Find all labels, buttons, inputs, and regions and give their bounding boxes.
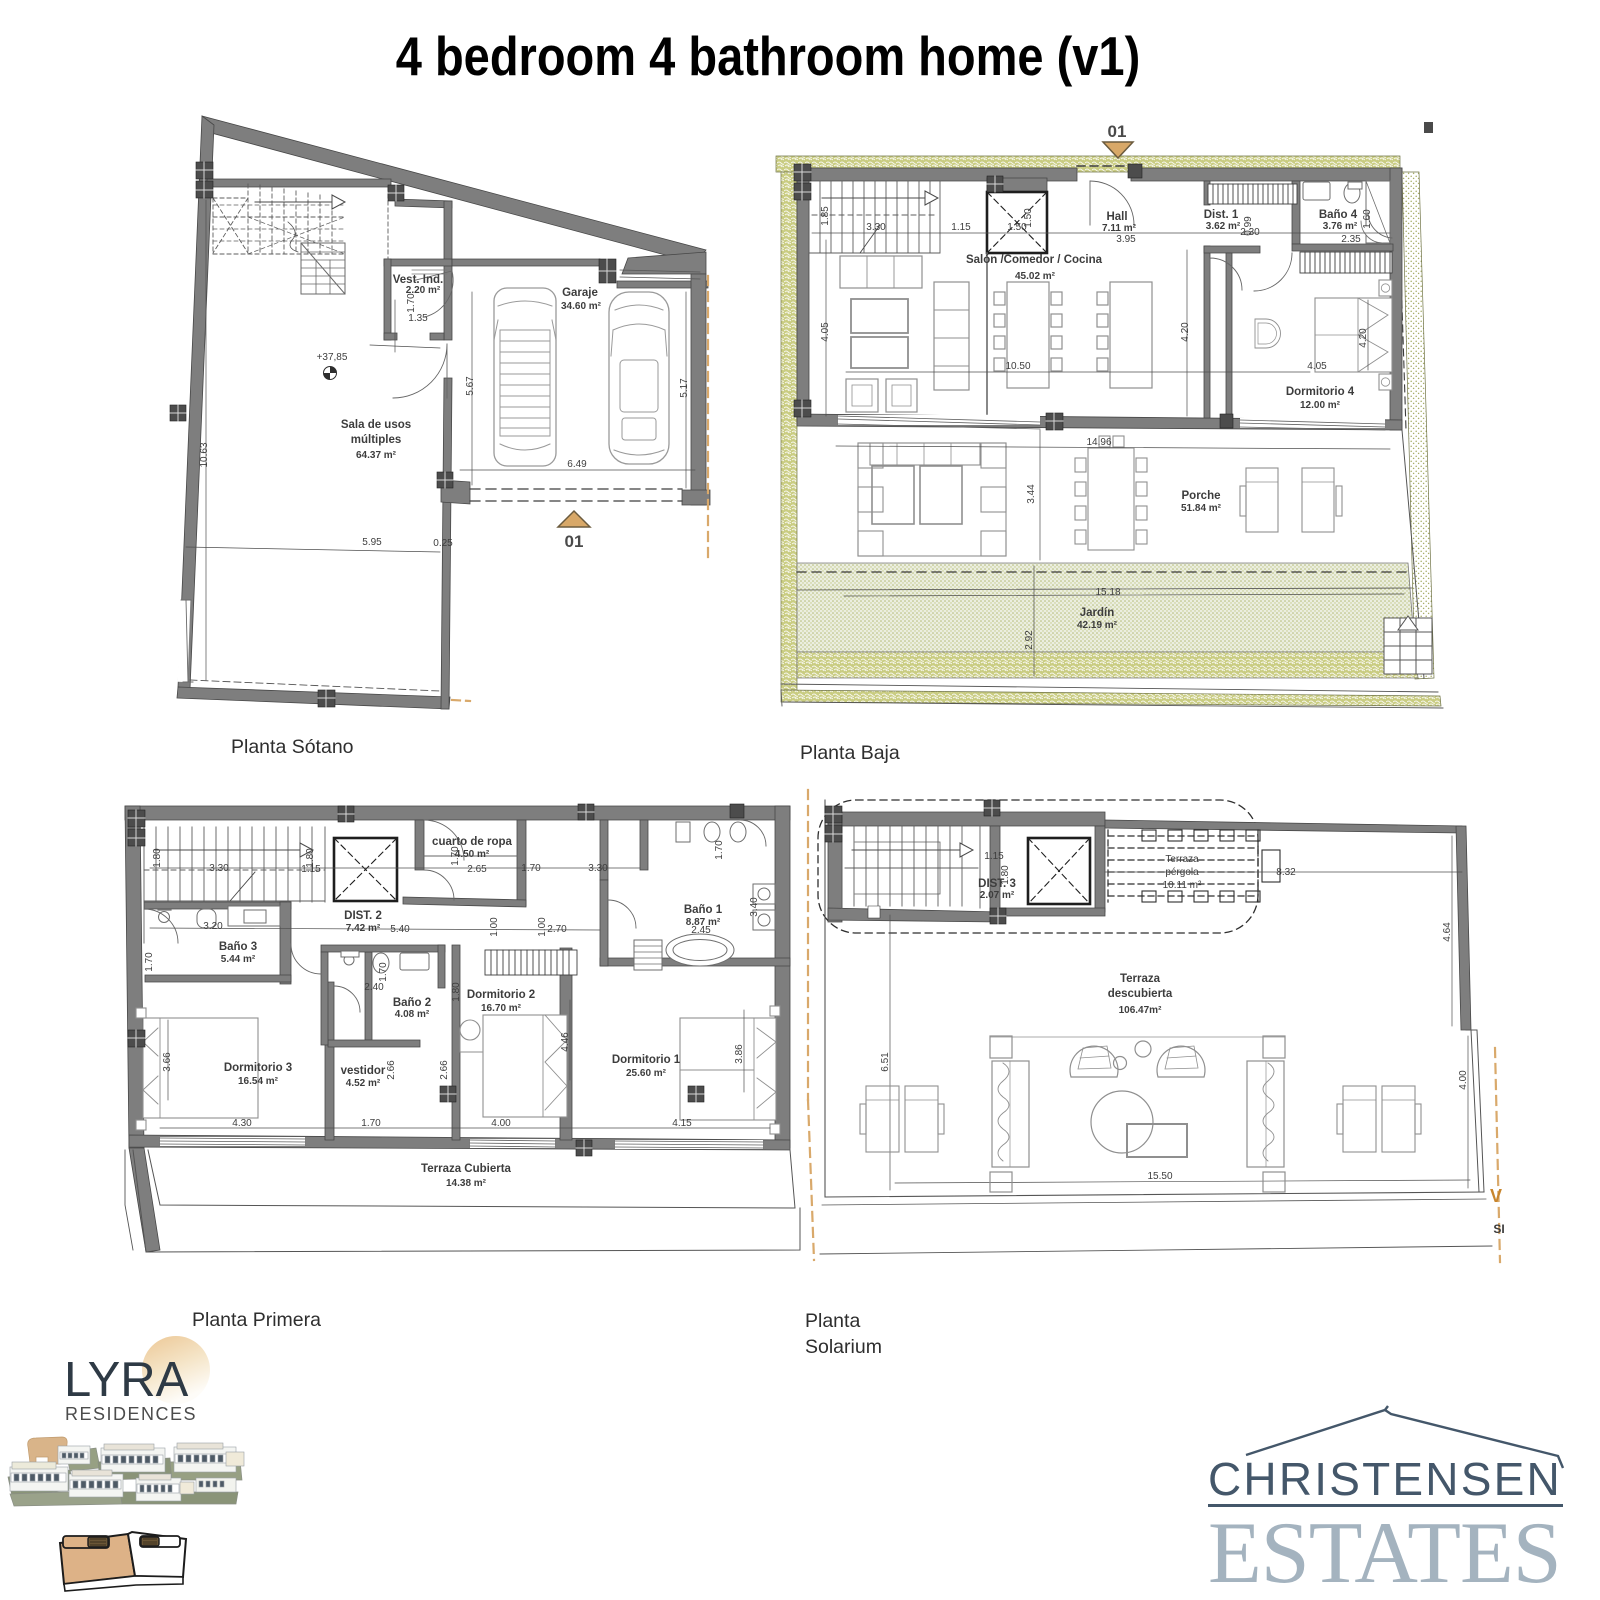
svg-text:Sala de usos: Sala de usos bbox=[341, 419, 411, 431]
svg-text:3.86: 3.86 bbox=[734, 1044, 745, 1064]
svg-text:Dormitorio 1: Dormitorio 1 bbox=[612, 1054, 681, 1066]
svg-text:1.70: 1.70 bbox=[714, 840, 725, 860]
svg-text:1.15: 1.15 bbox=[984, 851, 1004, 862]
svg-text:1.80: 1.80 bbox=[451, 982, 462, 1002]
svg-text:descubierta: descubierta bbox=[1108, 988, 1173, 1000]
svg-text:12.00 m²: 12.00 m² bbox=[1300, 400, 1341, 411]
svg-text:10.50: 10.50 bbox=[1005, 361, 1030, 372]
svg-text:3.44: 3.44 bbox=[1026, 484, 1037, 504]
svg-text:Dormitorio 4: Dormitorio 4 bbox=[1286, 386, 1355, 398]
svg-text:Baño 2: Baño 2 bbox=[393, 997, 431, 1009]
svg-text:5.40: 5.40 bbox=[390, 924, 410, 935]
svg-text:2.35: 2.35 bbox=[1341, 234, 1361, 245]
svg-text:1.70: 1.70 bbox=[521, 863, 541, 874]
svg-text:2.07 m²: 2.07 m² bbox=[980, 890, 1015, 901]
svg-text:4 bedroom 4 bathroom home (v1): 4 bedroom 4 bathroom home (v1) bbox=[396, 26, 1141, 87]
svg-text:1.80: 1.80 bbox=[1000, 865, 1011, 885]
svg-text:7.42 m²: 7.42 m² bbox=[346, 923, 381, 934]
svg-text:4.20: 4.20 bbox=[1358, 328, 1369, 348]
svg-text:2.45: 2.45 bbox=[691, 925, 711, 936]
svg-text:5.44 m²: 5.44 m² bbox=[221, 954, 256, 965]
svg-text:1.70: 1.70 bbox=[378, 962, 389, 982]
svg-text:4.05: 4.05 bbox=[1307, 361, 1327, 372]
svg-text:Baño 3: Baño 3 bbox=[219, 941, 257, 953]
svg-text:14.38 m²: 14.38 m² bbox=[446, 1178, 487, 1189]
svg-text:múltiples: múltiples bbox=[351, 434, 401, 446]
svg-text:14.96: 14.96 bbox=[1086, 437, 1111, 448]
svg-text:Garaje: Garaje bbox=[562, 287, 598, 299]
svg-text:3.95: 3.95 bbox=[1116, 234, 1136, 245]
svg-text:6.51: 6.51 bbox=[880, 1052, 891, 1072]
svg-text:Dist. 1: Dist. 1 bbox=[1204, 209, 1239, 221]
svg-text:Planta: Planta bbox=[805, 1310, 860, 1332]
svg-text:Planta Baja: Planta Baja bbox=[800, 742, 900, 764]
svg-text:42.19 m²: 42.19 m² bbox=[1077, 620, 1118, 631]
svg-text:2.66: 2.66 bbox=[386, 1060, 397, 1080]
svg-text:34.60 m²: 34.60 m² bbox=[561, 301, 602, 312]
svg-text:Terraza: Terraza bbox=[1120, 973, 1161, 985]
svg-text:10.63: 10.63 bbox=[199, 442, 210, 467]
svg-text:6.49: 6.49 bbox=[567, 459, 587, 470]
svg-text:1.70: 1.70 bbox=[450, 846, 461, 866]
svg-text:1.00: 1.00 bbox=[489, 917, 500, 937]
svg-text:16.54 m²: 16.54 m² bbox=[238, 1076, 279, 1087]
svg-text:51.84 m²: 51.84 m² bbox=[1181, 503, 1222, 514]
svg-text:4.15: 4.15 bbox=[672, 1118, 692, 1129]
svg-text:45.02 m²: 45.02 m² bbox=[1015, 271, 1056, 282]
svg-text:01: 01 bbox=[565, 532, 584, 551]
svg-text:0.99: 0.99 bbox=[1243, 216, 1254, 236]
svg-text:4.46: 4.46 bbox=[560, 1032, 571, 1052]
svg-text:ESTATES: ESTATES bbox=[1208, 1505, 1561, 1600]
svg-text:5.67: 5.67 bbox=[465, 376, 476, 396]
svg-text:1.70: 1.70 bbox=[144, 952, 155, 972]
svg-text:Dormitorio 3: Dormitorio 3 bbox=[224, 1062, 292, 1074]
svg-text:Baño 4: Baño 4 bbox=[1319, 209, 1358, 221]
svg-text:Terraza Cubierta: Terraza Cubierta bbox=[421, 1163, 512, 1175]
svg-text:1.15: 1.15 bbox=[951, 222, 971, 233]
svg-text:1.70: 1.70 bbox=[406, 293, 417, 313]
svg-text:Solarium: Solarium bbox=[805, 1336, 882, 1358]
svg-text:1.50: 1.50 bbox=[1023, 208, 1034, 228]
svg-text:10.11 m²: 10.11 m² bbox=[1163, 880, 1202, 891]
svg-text:8.32: 8.32 bbox=[1276, 867, 1296, 878]
svg-text:cuarto de ropa: cuarto de ropa bbox=[432, 836, 512, 848]
svg-text:2.40: 2.40 bbox=[364, 982, 384, 993]
svg-text:3.66: 3.66 bbox=[162, 1052, 173, 1072]
svg-text:2.92: 2.92 bbox=[1024, 630, 1035, 650]
svg-text:106.47m²: 106.47m² bbox=[1119, 1005, 1162, 1016]
svg-text:LYRA: LYRA bbox=[64, 1353, 189, 1407]
svg-text:2.66: 2.66 bbox=[439, 1060, 450, 1080]
svg-text:1.80: 1.80 bbox=[305, 848, 316, 868]
svg-text:Porche: Porche bbox=[1182, 490, 1221, 502]
svg-text:1.60: 1.60 bbox=[1362, 209, 1373, 229]
svg-text:16.70 m²: 16.70 m² bbox=[481, 1003, 522, 1014]
svg-text:4.64: 4.64 bbox=[1442, 922, 1453, 942]
svg-text:01: 01 bbox=[1108, 122, 1127, 141]
svg-text:3.30: 3.30 bbox=[866, 222, 886, 233]
svg-text:4.52 m²: 4.52 m² bbox=[346, 1078, 381, 1089]
svg-text:3.20: 3.20 bbox=[203, 921, 223, 932]
svg-text:4.05: 4.05 bbox=[820, 322, 831, 342]
svg-text:15.18: 15.18 bbox=[1095, 587, 1120, 598]
svg-text:Terraza: Terraza bbox=[1165, 854, 1199, 865]
svg-text:4.20: 4.20 bbox=[1180, 322, 1191, 342]
svg-text:RESIDENCES: RESIDENCES bbox=[65, 1404, 197, 1424]
svg-text:DIST. 2: DIST. 2 bbox=[344, 910, 382, 922]
svg-text:5.17: 5.17 bbox=[679, 378, 690, 398]
svg-text:Planta Primera: Planta Primera bbox=[192, 1309, 321, 1331]
svg-text:Baño 1: Baño 1 bbox=[684, 904, 723, 916]
svg-text:V: V bbox=[1490, 1186, 1502, 1206]
svg-text:5.95: 5.95 bbox=[362, 537, 382, 548]
svg-text:3.76 m²: 3.76 m² bbox=[1323, 221, 1358, 232]
svg-text:vestidor: vestidor bbox=[341, 1065, 386, 1077]
svg-text:7.11 m²: 7.11 m² bbox=[1102, 223, 1137, 234]
svg-text:0.25: 0.25 bbox=[433, 538, 453, 549]
svg-text:4.00: 4.00 bbox=[1458, 1070, 1469, 1090]
svg-text:3.30: 3.30 bbox=[209, 863, 229, 874]
svg-text:15.50: 15.50 bbox=[1147, 1171, 1172, 1182]
svg-text:3.30: 3.30 bbox=[588, 863, 608, 874]
svg-text:Hall: Hall bbox=[1106, 211, 1127, 223]
svg-text:SI: SI bbox=[1493, 1222, 1504, 1236]
svg-text:+37,85: +37,85 bbox=[317, 352, 348, 363]
svg-text:Salón /Comedor / Cocina: Salón /Comedor / Cocina bbox=[966, 254, 1103, 266]
svg-text:1.80: 1.80 bbox=[152, 848, 163, 868]
svg-text:1.35: 1.35 bbox=[408, 313, 428, 324]
svg-text:1.00: 1.00 bbox=[537, 917, 548, 937]
svg-text:1.70: 1.70 bbox=[361, 1118, 381, 1129]
svg-text:Planta Sótano: Planta Sótano bbox=[231, 736, 354, 758]
svg-text:4.08 m²: 4.08 m² bbox=[395, 1009, 430, 1020]
svg-text:Jardín: Jardín bbox=[1080, 607, 1115, 619]
svg-text:2.65: 2.65 bbox=[467, 864, 487, 875]
svg-text:4.30: 4.30 bbox=[232, 1118, 252, 1129]
svg-text:2.70: 2.70 bbox=[547, 924, 567, 935]
svg-text:Dormitorio 2: Dormitorio 2 bbox=[467, 989, 535, 1001]
svg-text:3.62 m²: 3.62 m² bbox=[1206, 221, 1241, 232]
svg-text:3.40: 3.40 bbox=[749, 897, 760, 917]
svg-text:25.60 m²: 25.60 m² bbox=[626, 1068, 667, 1079]
svg-text:1.85: 1.85 bbox=[820, 206, 831, 226]
svg-text:pérgola: pérgola bbox=[1165, 867, 1199, 878]
svg-text:CHRISTENSEN: CHRISTENSEN bbox=[1208, 1453, 1562, 1505]
svg-text:4.00: 4.00 bbox=[491, 1118, 511, 1129]
svg-text:64.37 m²: 64.37 m² bbox=[356, 450, 397, 461]
